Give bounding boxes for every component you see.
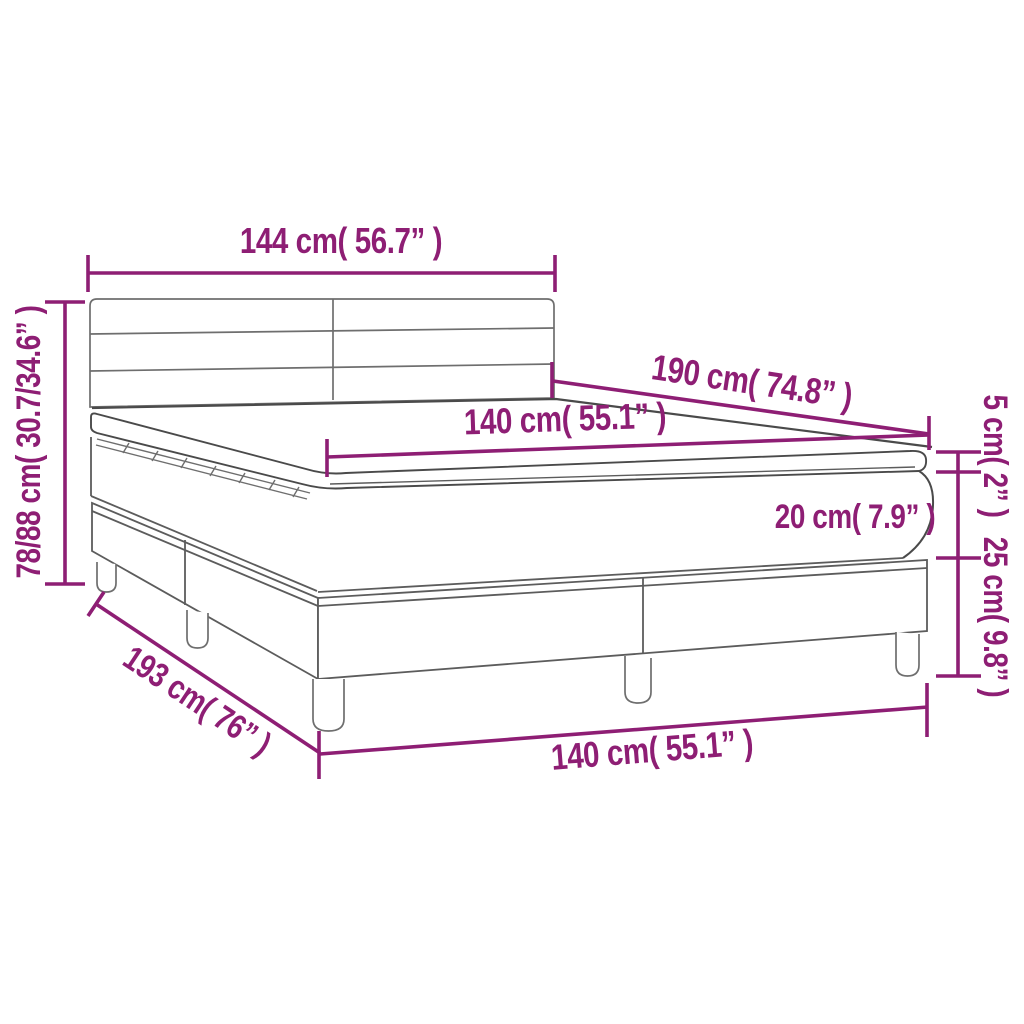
dim-label-width-mattress: 140 cm( 55.1” ) bbox=[463, 397, 666, 440]
dim-label-width-top: 144 cm( 56.7” ) bbox=[240, 223, 442, 259]
dim-label-height-left: 78/88 cm( 30.7/34.6” ) bbox=[12, 305, 46, 578]
dim-height-left-lines bbox=[45, 302, 85, 584]
dim-label-base-height: 25 cm( 9.8” ) bbox=[978, 537, 1012, 697]
dim-label-topper-height: 5 cm( 2” ) bbox=[978, 395, 1012, 518]
bed-leg-1 bbox=[97, 562, 116, 592]
bed-leg-3 bbox=[313, 679, 344, 731]
headboard-outline bbox=[90, 299, 554, 407]
bed-leg-4 bbox=[625, 656, 651, 703]
bed-leg-2 bbox=[187, 610, 208, 648]
dim-label-mattress-height: 20 cm( 7.9” ) bbox=[775, 500, 935, 534]
base-foot-face bbox=[318, 560, 927, 679]
bed-leg-5 bbox=[896, 632, 919, 676]
headboard bbox=[90, 299, 554, 407]
bed-dimension-diagram: 144 cm( 56.7” ) 78/88 cm( 30.7/34.6” ) 1… bbox=[0, 0, 1024, 1024]
dim-right-stack-lines bbox=[936, 452, 981, 676]
